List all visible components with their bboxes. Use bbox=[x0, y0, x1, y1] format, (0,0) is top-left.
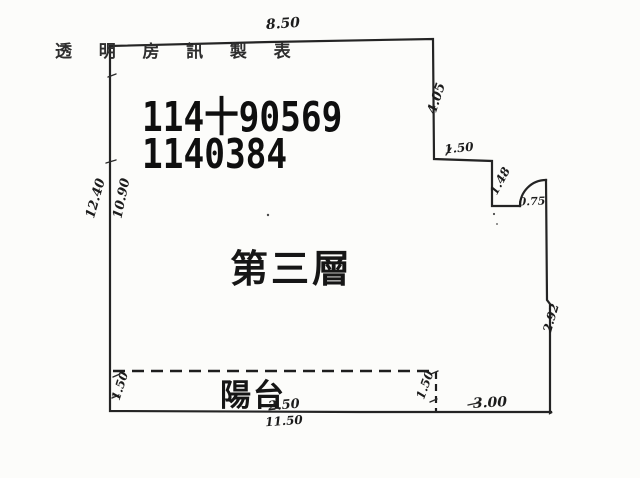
room-label-third-floor: 第三層 bbox=[230, 238, 353, 293]
stamp-number-line2: 1140384 bbox=[142, 136, 342, 173]
ink-speck bbox=[267, 214, 269, 216]
watermark-text: 透 明 房 訊 製 表 bbox=[55, 37, 302, 62]
dimension-bottom-right: 3.00 bbox=[468, 394, 513, 412]
stamp-numbers: 114十90569 1140384 bbox=[142, 99, 342, 173]
dimension-door-width: 0.75 bbox=[510, 194, 554, 209]
ink-speck bbox=[496, 223, 498, 225]
ink-speck bbox=[493, 213, 495, 215]
floorplan-page: 透 明 房 訊 製 表 114十90569 1140384 第三層 陽台 8.5… bbox=[0, 0, 640, 478]
dimension-top-width: 8.50 bbox=[260, 14, 305, 33]
